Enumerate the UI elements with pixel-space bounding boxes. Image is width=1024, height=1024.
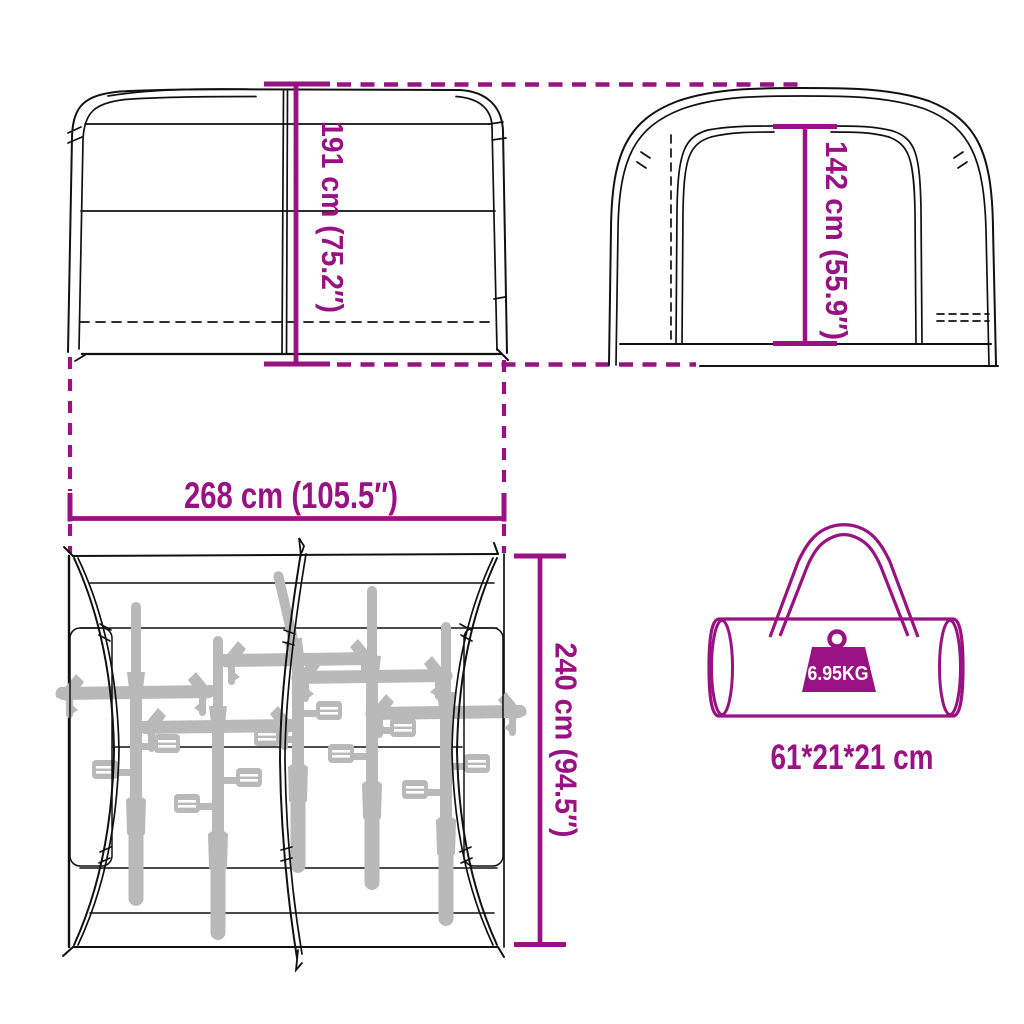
svg-text:191 cm (75.2″): 191 cm (75.2″) bbox=[315, 121, 350, 313]
svg-text:61*21*21 cm: 61*21*21 cm bbox=[771, 738, 934, 777]
svg-text:268 cm (105.5″): 268 cm (105.5″) bbox=[184, 475, 398, 516]
svg-text:142 cm (55.9″): 142 cm (55.9″) bbox=[819, 141, 854, 340]
svg-text:240 cm (94.5″): 240 cm (94.5″) bbox=[548, 643, 583, 838]
svg-text:6.95KG: 6.95KG bbox=[808, 663, 869, 685]
